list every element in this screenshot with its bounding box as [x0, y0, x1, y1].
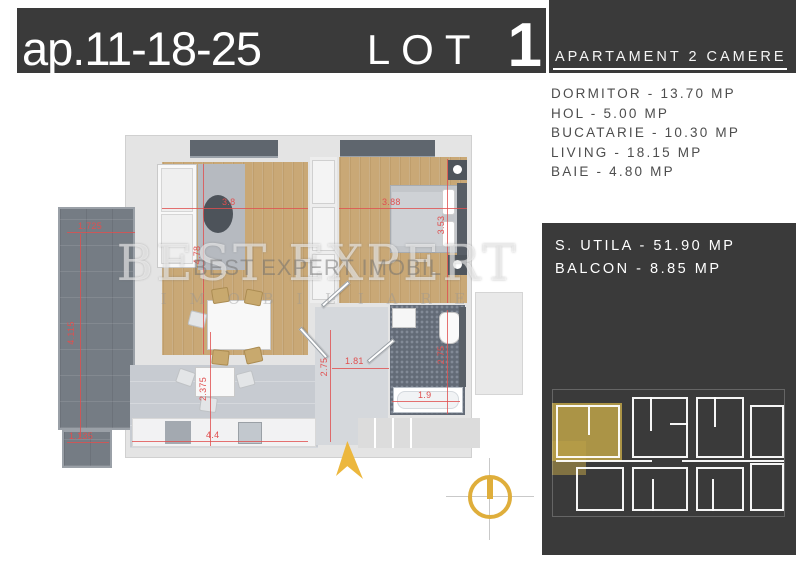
dim-line	[210, 332, 211, 446]
header-underline	[553, 68, 787, 70]
apartment-floor-plan: 1.725 4.115 1.135 3.8 4.78 3.88 3.53 4.4…	[40, 100, 535, 475]
stair-line	[392, 418, 394, 448]
wardrobe-unit	[312, 160, 335, 204]
room-line-hol: HOL - 5.00 MP	[551, 104, 740, 124]
keyplan-unit	[632, 397, 688, 458]
bed-headboard	[457, 183, 467, 255]
stair-line	[374, 418, 376, 448]
keyplan-wall	[712, 479, 714, 511]
keyplan-unit	[696, 467, 744, 511]
title-bar: ap.11-18-25 LOT 1	[17, 8, 546, 73]
dining-table	[207, 300, 271, 350]
compass-needle	[487, 479, 493, 499]
apartment-number-label: ap.11-18-25	[22, 27, 261, 72]
dim-balcony-length: 4.115	[66, 316, 76, 350]
keyplan-unit	[750, 463, 784, 511]
keyplan-unit	[750, 405, 784, 458]
sofa-cushion	[161, 214, 193, 264]
building-key-plan	[552, 383, 788, 533]
keyplan-unit	[632, 467, 688, 511]
dim-hall-height: 2.75	[319, 350, 329, 384]
dining-chair	[211, 349, 229, 366]
dim-kitchen-width: 4.4	[206, 430, 219, 440]
summary-panel: S. UTILA - 51.90 MP BALCON - 8.85 MP	[542, 223, 796, 555]
keyplan-unit	[576, 467, 624, 511]
keyplan-wall	[650, 397, 652, 431]
living-window	[190, 140, 278, 158]
dim-living-height: 4.78	[192, 238, 202, 272]
dining-chair	[211, 287, 230, 304]
usable-area-label: S. UTILA - 51.90 MP	[555, 235, 735, 258]
dim-bedroom-width: 3.88	[382, 197, 401, 207]
dim-balcony-width: 1.725	[78, 221, 102, 231]
lot-label: LOT	[367, 29, 482, 72]
keyplan-corridor-wall	[556, 460, 652, 462]
sofa-cushion	[161, 168, 193, 212]
dim-line	[330, 330, 331, 442]
bathroom-sink	[392, 308, 416, 328]
dim-line	[447, 310, 448, 414]
dim-bath-width: 1.9	[418, 390, 431, 400]
room-line-baie: BAIE - 4.80 MP	[551, 162, 740, 182]
dim-line	[132, 441, 308, 442]
apartment-type-header: APARTAMENT 2 CAMERE	[549, 0, 796, 73]
dim-line	[67, 232, 135, 233]
dim-balcony-bottom: 1.135	[69, 431, 93, 441]
keyplan-wall	[714, 397, 716, 427]
entry-landing	[358, 418, 480, 448]
dim-bedroom-height: 3.53	[436, 208, 446, 242]
dim-line	[80, 234, 81, 437]
keyplan-unit	[696, 397, 744, 458]
dining-chair	[244, 289, 264, 307]
kitchen-counter	[132, 418, 316, 447]
dim-line	[392, 401, 460, 402]
keyplan-wall	[670, 423, 688, 425]
lamp	[453, 260, 462, 269]
dim-hall-width: 1.81	[345, 356, 364, 366]
room-line-bucatarie: BUCATARIE - 10.30 MP	[551, 123, 740, 143]
wardrobe-unit	[312, 207, 335, 251]
stair-line	[410, 418, 412, 448]
keyplan-wall	[652, 479, 654, 511]
dim-line	[67, 442, 109, 443]
room-line-dormitor: DORMITOR - 13.70 MP	[551, 84, 740, 104]
bedroom-window	[340, 140, 435, 158]
bathroom-wall-strip	[459, 307, 466, 387]
apartment-type-label: APARTAMENT 2 CAMERE	[555, 49, 787, 65]
dim-line	[162, 208, 308, 209]
keyplan-wall	[588, 405, 590, 435]
dim-line	[332, 368, 389, 369]
room-area-list: DORMITOR - 13.70 MP HOL - 5.00 MP BUCATA…	[551, 84, 740, 182]
dim-bath-height: 2.75	[436, 338, 446, 372]
dim-living-width: 3.8	[222, 197, 235, 207]
keyplan-corridor-wall	[682, 460, 784, 462]
dim-kitchen-height: 2.375	[198, 372, 208, 406]
room-line-living: LIVING - 18.15 MP	[551, 143, 740, 163]
lamp	[453, 165, 462, 174]
floorplan-poster: ap.11-18-25 LOT 1 APARTAMENT 2 CAMERE DO…	[0, 0, 796, 563]
summary-text: S. UTILA - 51.90 MP BALCON - 8.85 MP	[555, 235, 735, 281]
lot-number: 1	[508, 21, 542, 72]
exterior-strip	[475, 292, 523, 395]
dim-line	[203, 164, 204, 354]
wardrobe-unit	[312, 254, 335, 300]
balcony-area-label: BALCON - 8.85 MP	[555, 258, 735, 281]
dim-line	[447, 159, 448, 303]
